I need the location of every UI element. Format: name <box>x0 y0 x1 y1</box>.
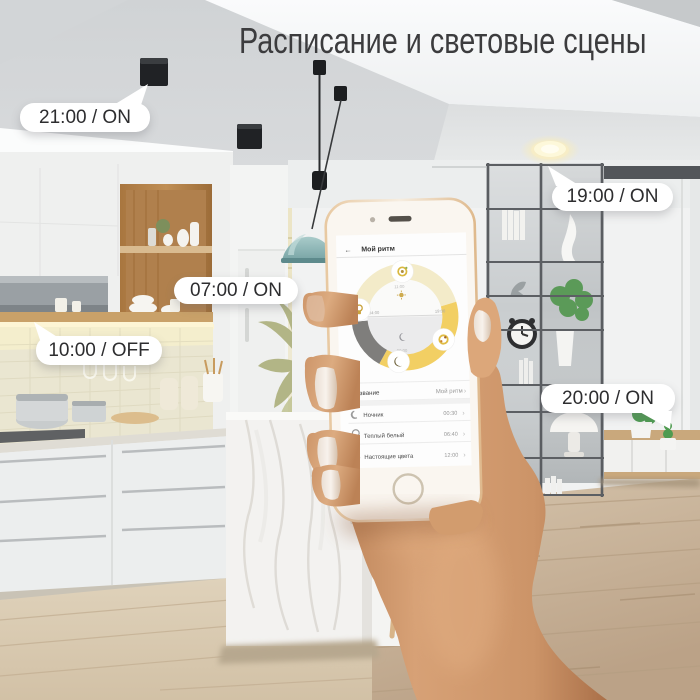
svg-text:06:40: 06:40 <box>444 432 458 438</box>
svg-text:12:00: 12:00 <box>444 453 458 459</box>
svg-text:Мой ритм: Мой ритм <box>436 388 463 396</box>
svg-text:04:00: 04:00 <box>369 310 380 315</box>
svg-text:Теплый белый: Теплый белый <box>364 432 405 440</box>
svg-text:19:00: 19:00 <box>435 308 446 313</box>
svg-text:Мой ритм: Мой ритм <box>361 245 395 254</box>
svg-text:11:00: 11:00 <box>394 284 405 289</box>
svg-text:Ночник: Ночник <box>363 412 383 418</box>
svg-text:00:30: 00:30 <box>443 411 457 417</box>
svg-text:←: ← <box>344 245 352 254</box>
svg-text:Настоящие цвета: Настоящие цвета <box>364 454 414 461</box>
